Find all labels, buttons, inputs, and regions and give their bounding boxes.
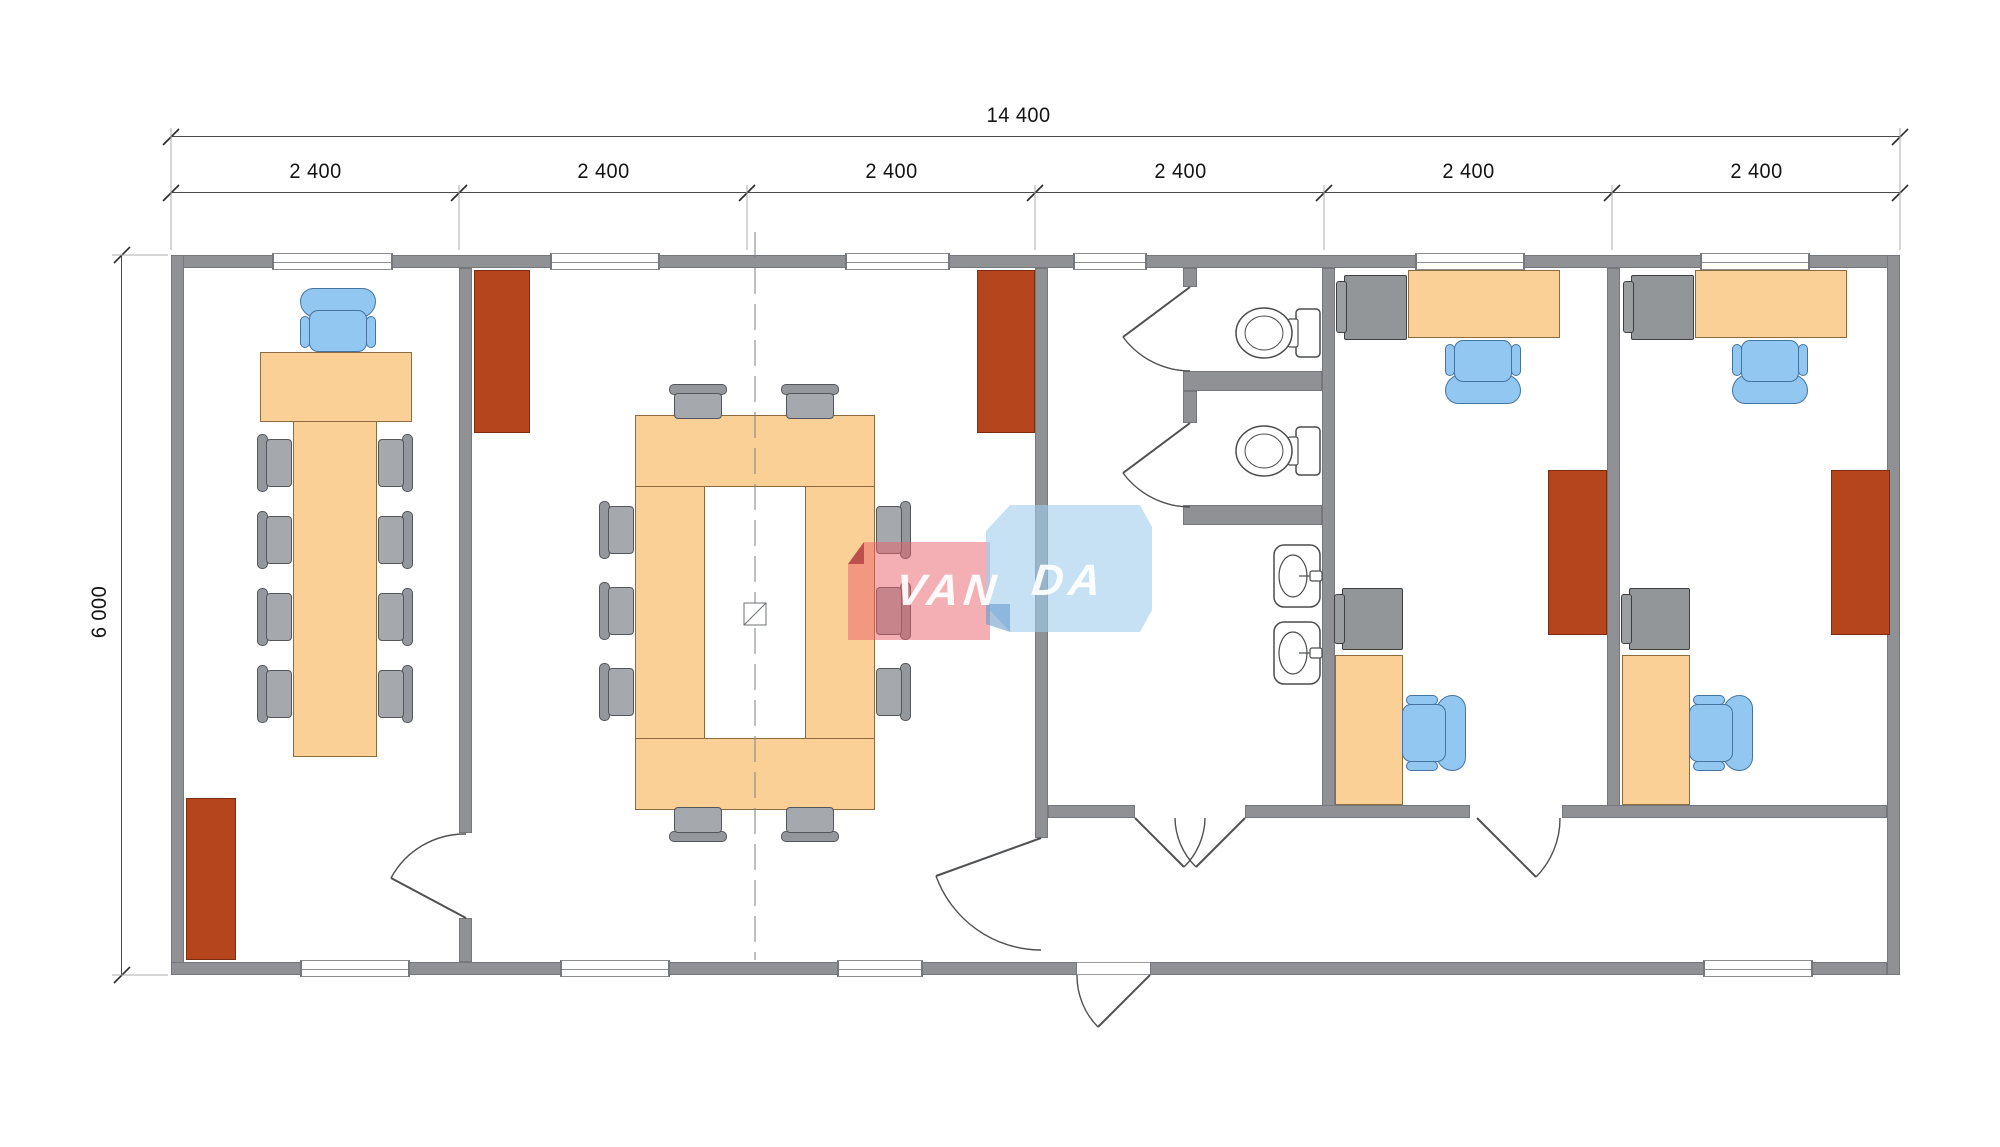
chair-conference-left-1: [599, 500, 635, 560]
wall-wc-partition-1: [1183, 371, 1322, 391]
dimension-label-module-4: 2 400: [1154, 160, 1206, 184]
wall-wc-stall-stub-top: [1183, 268, 1197, 287]
cabinet-office1-bottom: [1342, 588, 1403, 650]
toilet-icon-1: [1236, 308, 1320, 358]
wall-meeting-conference: [459, 268, 472, 833]
wall-exterior-top: [171, 255, 1900, 268]
dimension-label-module-2: 2 400: [577, 160, 629, 184]
chair-meeting-left-3: [257, 587, 293, 647]
dimension-label-total-width: 14 400: [987, 104, 1051, 128]
chair-conference-top-1: [668, 384, 728, 420]
chair-conference-right-3: [875, 662, 911, 722]
chair-office1-top: [1445, 338, 1521, 404]
wall-wc-partition-2: [1183, 505, 1322, 525]
wardrobe-meeting-room: [186, 798, 236, 960]
dimension-label-module-1: 2 400: [289, 160, 341, 184]
door-office1: [1477, 818, 1560, 877]
module-centerline: [744, 232, 766, 960]
wall-hall-segment-2: [1245, 805, 1470, 818]
conference-table-left: [635, 486, 705, 739]
conference-table-bottom: [635, 738, 875, 810]
chair-meeting-left-1: [257, 433, 293, 493]
wall-exterior-left: [171, 255, 184, 975]
chair-meeting-right-4: [377, 664, 413, 724]
window-office1-top: [1415, 253, 1525, 270]
cabinet-office1-top: [1344, 275, 1407, 340]
dimension-line-height: [121, 255, 122, 975]
door-wc-stall-2: [1123, 423, 1190, 507]
chair-conference-left-3: [599, 662, 635, 722]
window-meeting-bottom: [300, 960, 410, 977]
chair-conference-left-2: [599, 581, 635, 641]
floor-plan-canvas: 14 400 2 400 2 400 2 400 2 400 2 400 2 4…: [0, 0, 2000, 1147]
table-meeting-long: [293, 421, 377, 757]
door-hall-double: [1135, 818, 1245, 867]
wall-meeting-conference-stub: [459, 918, 472, 962]
chair-meeting-left-4: [257, 664, 293, 724]
chair-office2-bottom: [1687, 695, 1753, 771]
center-marker-icon: [744, 603, 766, 625]
chair-meeting-right-3: [377, 587, 413, 647]
conference-table-top: [635, 415, 875, 487]
chair-meeting-right-2: [377, 510, 413, 570]
chair-office2-top: [1732, 338, 1808, 404]
wall-hall-segment-3: [1562, 805, 1887, 818]
dimension-label-module-3: 2 400: [865, 160, 917, 184]
chair-executive-meeting: [300, 288, 376, 352]
desk-office2-top: [1695, 270, 1847, 338]
sink-icon-1: [1274, 545, 1322, 607]
chair-conference-top-2: [780, 384, 840, 420]
cabinet-office2-top: [1631, 275, 1694, 340]
door-entrance-exterior: [1077, 975, 1150, 1027]
window-corridor-bottom: [1703, 960, 1813, 977]
wardrobe-conference-right: [977, 270, 1035, 433]
dimension-label-module-6: 2 400: [1730, 160, 1782, 184]
window-wc-top: [1073, 253, 1147, 270]
entrance-threshold: [1077, 962, 1150, 975]
door-wc-stall-1: [1123, 287, 1190, 371]
desk-meeting-head: [260, 352, 412, 422]
window-conference-bottom-right: [837, 960, 923, 977]
chair-conference-bottom-1: [668, 806, 728, 842]
wc-fixtures: [1236, 308, 1322, 684]
window-conference-top-left: [550, 253, 660, 270]
wall-wc-office1: [1322, 268, 1335, 806]
chair-meeting-left-2: [257, 510, 293, 570]
window-conference-top-right: [845, 253, 950, 270]
desk-office2-bottom: [1622, 655, 1690, 805]
door-conference-room: [936, 838, 1041, 950]
wall-office1-office2: [1607, 268, 1620, 806]
dimension-line-total-width: [171, 136, 1900, 137]
door-meeting-room: [391, 834, 466, 918]
window-conference-bottom-left: [560, 960, 670, 977]
chair-office1-bottom: [1400, 695, 1466, 771]
wardrobe-conference-left: [474, 270, 530, 433]
watermark-text-da: DA: [1029, 556, 1108, 606]
chair-conference-bottom-2: [780, 806, 840, 842]
watermark-text-van: VAN: [893, 566, 1003, 616]
wardrobe-office1: [1548, 470, 1607, 635]
chair-meeting-right-1: [377, 433, 413, 493]
wall-hall-segment-1: [1048, 805, 1135, 818]
dimension-line-modules: [171, 192, 1900, 193]
wardrobe-office2: [1831, 470, 1890, 635]
desk-office1-top: [1408, 270, 1560, 338]
dimension-label-height: 6 000: [88, 574, 112, 650]
wall-wc-stall-stub-mid: [1183, 391, 1197, 423]
window-office2-top: [1700, 253, 1810, 270]
window-meeting-top: [272, 253, 393, 270]
dimension-label-module-5: 2 400: [1442, 160, 1494, 184]
toilet-icon-2: [1236, 426, 1320, 476]
cabinet-office2-bottom: [1629, 588, 1690, 650]
sink-icon-2: [1274, 622, 1322, 684]
desk-office1-bottom: [1335, 655, 1403, 805]
